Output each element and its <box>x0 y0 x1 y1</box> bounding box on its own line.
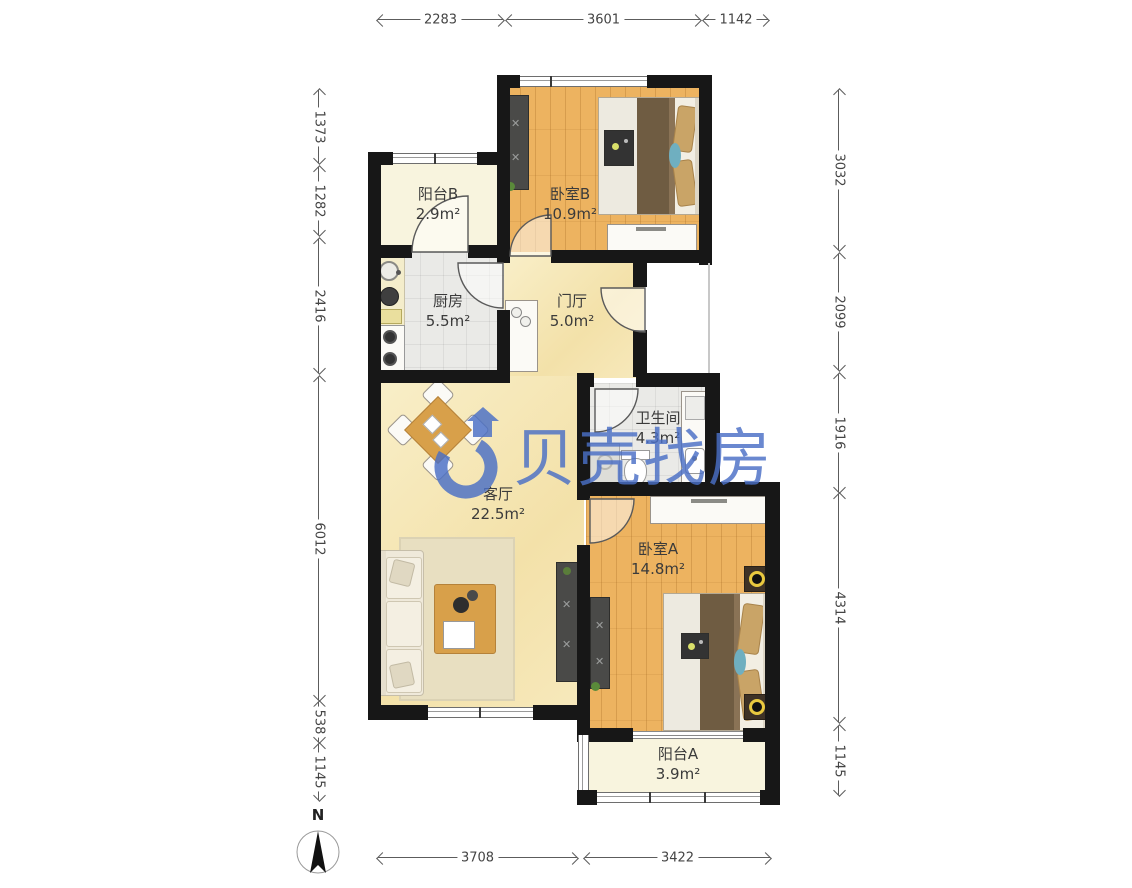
room-name: 卧室A <box>613 539 703 559</box>
compass: N <box>294 806 342 888</box>
room-name: 卫生间 <box>613 408 703 428</box>
room-area: 5.0m² <box>527 311 617 331</box>
dimension-value: 1142 <box>715 13 756 28</box>
dimension-value: 1282 <box>312 181 327 220</box>
compass-north-label: N <box>294 806 342 824</box>
dimension-value: 3032 <box>832 150 847 189</box>
floorplan: ✕ ✕ <box>0 0 1132 888</box>
door-arc-bedroom-a <box>590 499 634 543</box>
room-name: 门厅 <box>527 291 617 311</box>
room-name: 阳台B <box>393 184 483 204</box>
room-label-bathroom: 卫生间 4.3m² <box>613 408 703 448</box>
dimension-value: 538 <box>312 707 327 738</box>
room-name: 客厅 <box>453 484 543 504</box>
dimension-value: 1916 <box>832 413 847 452</box>
door-arcs <box>0 0 1132 888</box>
room-label-foyer: 门厅 5.0m² <box>527 291 617 331</box>
room-name: 阳台A <box>633 744 723 764</box>
room-label-bedroom-b: 卧室B 10.9m² <box>525 184 615 224</box>
dimension: 3422 <box>585 857 770 858</box>
dimension-value: 3422 <box>657 851 698 866</box>
dimension: 1145 <box>838 726 839 795</box>
dimension-value: 3708 <box>457 851 498 866</box>
dimension: 2099 <box>838 254 839 370</box>
room-area: 3.9m² <box>633 764 723 784</box>
dimension: 1373 <box>318 90 319 163</box>
dimension: 1145 <box>318 744 319 800</box>
room-name: 卧室B <box>525 184 615 204</box>
room-label-kitchen: 厨房 5.5m² <box>403 291 493 331</box>
room-label-bedroom-a: 卧室A 14.8m² <box>613 539 703 579</box>
dimension: 1282 <box>318 167 319 235</box>
room-area: 5.5m² <box>403 311 493 331</box>
dimension: 4314 <box>838 494 839 722</box>
dimension: 1142 <box>704 19 768 20</box>
dimension: 2283 <box>378 19 503 20</box>
dimension: 3601 <box>507 19 700 20</box>
dimension-value: 4314 <box>832 588 847 627</box>
room-area: 22.5m² <box>453 504 543 524</box>
dimension-value: 1145 <box>832 741 847 780</box>
room-area: 10.9m² <box>525 204 615 224</box>
dimension-value: 6012 <box>312 519 327 558</box>
room-area: 2.9m² <box>393 204 483 224</box>
dimension: 3708 <box>378 857 577 858</box>
dimension-value: 2099 <box>832 292 847 331</box>
room-label-balcony-b: 阳台B 2.9m² <box>393 184 483 224</box>
dimension: 3032 <box>838 90 839 250</box>
room-area: 14.8m² <box>613 559 703 579</box>
room-name: 厨房 <box>403 291 493 311</box>
room-label-living-room: 客厅 22.5m² <box>453 484 543 524</box>
dimension: 538 <box>318 702 319 742</box>
room-label-balcony-a: 阳台A 3.9m² <box>633 744 723 784</box>
dimension-value: 3601 <box>583 13 624 28</box>
dimension: 1916 <box>838 374 839 492</box>
dimension: 6012 <box>318 377 319 700</box>
dimension-value: 2416 <box>312 286 327 325</box>
dimension-value: 1373 <box>312 107 327 146</box>
compass-icon <box>294 824 342 880</box>
room-area: 4.3m² <box>613 428 703 448</box>
dimension-value: 2283 <box>420 13 461 28</box>
dimension: 2416 <box>318 239 319 373</box>
dimension-value: 1145 <box>312 752 327 791</box>
